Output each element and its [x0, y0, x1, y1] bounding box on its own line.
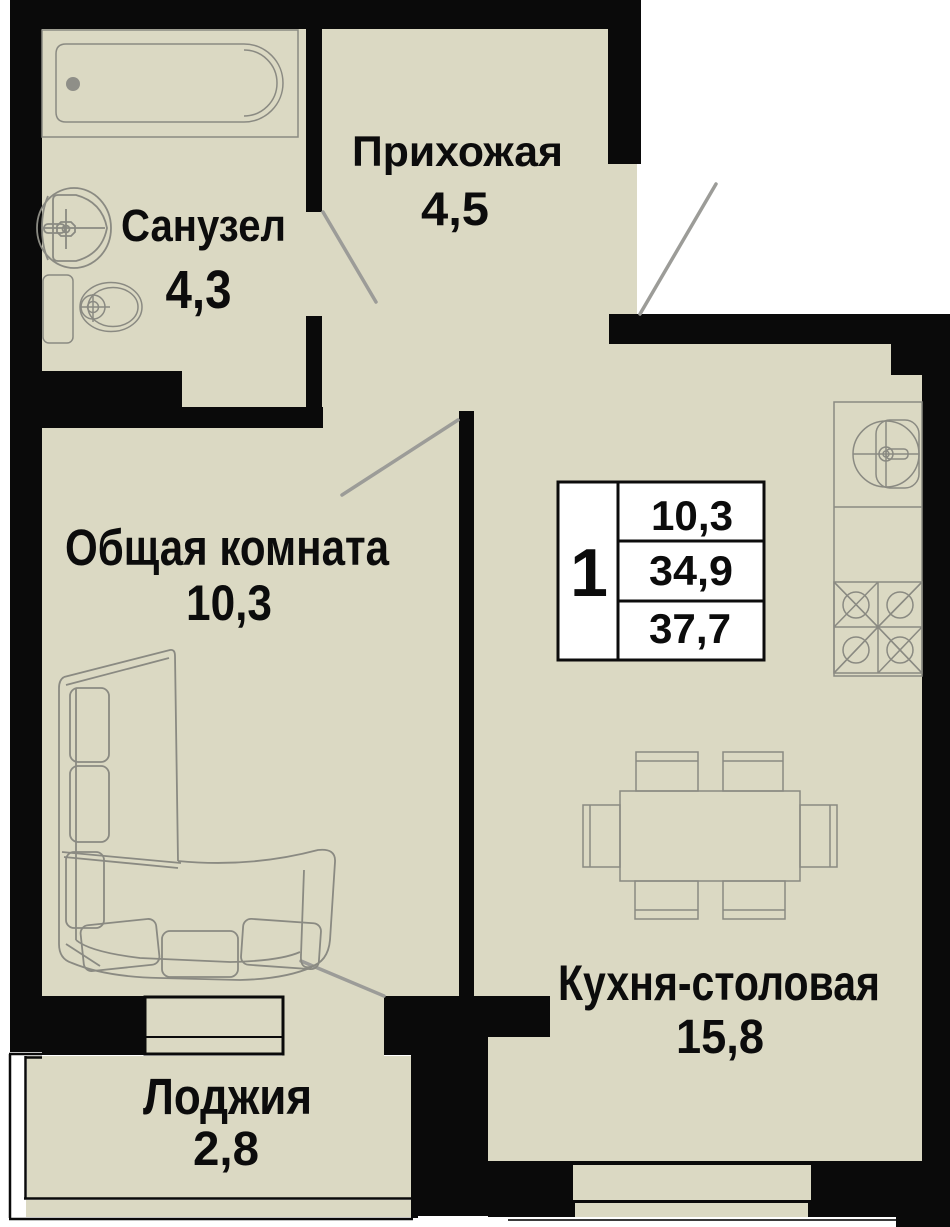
svg-text:10,3: 10,3	[651, 492, 733, 539]
svg-text:4,3: 4,3	[166, 260, 232, 320]
svg-text:10,3: 10,3	[186, 575, 272, 631]
svg-text:Прихожая: Прихожая	[352, 128, 563, 176]
svg-text:Лоджия: Лоджия	[143, 1068, 312, 1125]
svg-text:4,5: 4,5	[421, 182, 489, 235]
svg-text:15,8: 15,8	[676, 1011, 764, 1064]
svg-text:Кухня-столовая: Кухня-столовая	[558, 955, 880, 1011]
svg-text:37,7: 37,7	[649, 605, 731, 652]
svg-text:34,9: 34,9	[649, 547, 733, 594]
svg-text:Общая комната: Общая комната	[65, 519, 390, 576]
svg-text:2,8: 2,8	[193, 1123, 259, 1176]
svg-text:Санузел: Санузел	[121, 200, 286, 251]
svg-text:1: 1	[570, 535, 608, 611]
